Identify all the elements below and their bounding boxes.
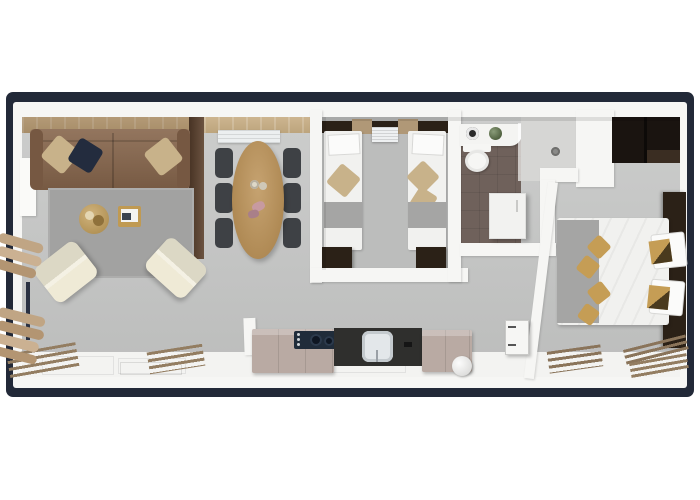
shadow-wall-right — [322, 117, 326, 270]
wall-shower-right — [576, 110, 614, 187]
dining-table — [232, 141, 284, 259]
twin-bed-runner — [408, 202, 446, 228]
shadow-top-wall — [322, 117, 680, 121]
dining-chair — [283, 218, 301, 248]
master-pillow-gold — [647, 285, 670, 310]
table-plate — [259, 182, 267, 190]
kitchen-small-item — [404, 342, 412, 347]
hall-cabinet — [489, 193, 526, 239]
twin-bed-pillow — [411, 133, 444, 156]
dining-chair — [215, 218, 233, 248]
plant — [489, 127, 502, 140]
boiler-cylinder — [452, 356, 472, 376]
vanity-faucet — [466, 127, 479, 140]
coffee-table-tray — [93, 215, 104, 226]
dining-chair — [215, 183, 233, 213]
table-plate — [250, 180, 259, 189]
wall-living-twin — [310, 110, 322, 283]
wardrobe-shelf — [647, 150, 680, 163]
dining-chair — [215, 148, 233, 178]
dining-chair — [283, 183, 301, 213]
master-pillow-gold — [649, 239, 673, 265]
door-hinge — [508, 344, 516, 346]
cooktop-knob — [297, 343, 300, 346]
toilet-bowl — [465, 150, 489, 172]
hall-cabinet-handle — [516, 200, 518, 212]
dining-chair — [283, 148, 301, 178]
sofa-armrest-left — [30, 129, 43, 190]
magazine-photo — [122, 213, 131, 220]
twin-bed-runner — [324, 202, 362, 228]
floorplan-canvas — [0, 0, 700, 500]
cooktop-burner — [310, 334, 322, 346]
sink-faucet — [376, 350, 378, 362]
shower-glass — [518, 123, 521, 181]
cooktop-burner — [324, 336, 334, 346]
twin-bed-pillow — [327, 133, 360, 156]
sideboard-ac — [218, 130, 280, 143]
door-hinge — [508, 326, 516, 328]
shower-drain — [551, 147, 560, 156]
twin-ac-unit — [372, 127, 398, 142]
cooktop-knob — [297, 338, 300, 341]
cooktop-knob — [297, 333, 300, 336]
wall-twin-bottom — [310, 268, 468, 282]
